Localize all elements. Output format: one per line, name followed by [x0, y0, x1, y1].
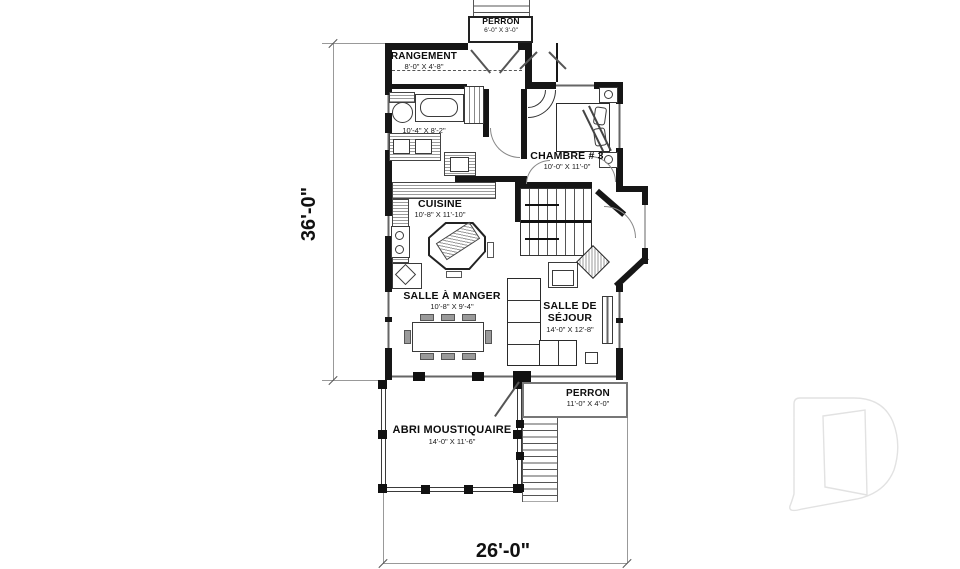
- room-dims-salle-de-sejour: 14'-0" X 12'-8": [535, 325, 605, 334]
- window-dining-mullion: [385, 317, 392, 322]
- laundry-sink: [450, 157, 469, 172]
- porch-door-leaf: [494, 381, 520, 417]
- nightstand-lamp: [604, 90, 613, 99]
- bathroom-door-swing: [490, 128, 520, 158]
- floor-plan: 36'-0" 26'-0" PERRON 6'-0" X 3'-0": [0, 0, 960, 569]
- stove-burner: [395, 245, 404, 254]
- window-bedroom-north: [556, 82, 594, 89]
- stair-arrow: [525, 204, 559, 206]
- stair-post: [516, 484, 524, 492]
- dim-line-vertical-36ft: [333, 43, 334, 380]
- dining-chair: [441, 314, 455, 321]
- porch-screen-south: [381, 487, 522, 492]
- room-dims-perron-bas: 11'-0" X 4'-0": [548, 399, 628, 408]
- dim-extension-left-26: [383, 493, 384, 563]
- window-south-4: [531, 373, 616, 380]
- wall-rangement-bath: [392, 84, 467, 89]
- pillow: [593, 106, 607, 125]
- wall-hall-bedroom: [521, 89, 527, 159]
- porch-post: [378, 484, 387, 493]
- wall-top-left: [385, 43, 468, 50]
- toilet: [392, 102, 413, 123]
- island-stool: [487, 242, 494, 258]
- room-label-perron-bas: PERRON: [548, 388, 628, 400]
- stair-post: [516, 452, 524, 460]
- window-south-1: [392, 373, 413, 380]
- room-label-perron-top: PERRON: [471, 17, 531, 27]
- overall-depth-label: 36'-0": [298, 179, 320, 249]
- room-dims-cuisine: 10'-8" X 11'-10": [405, 210, 475, 219]
- room-label-salle-a-manger: SALLE À MANGER: [392, 290, 512, 302]
- drummond-logo-watermark: [780, 382, 960, 522]
- room-dims-abri-moustiquaire: 14'-0" X 11'-6": [382, 437, 522, 446]
- dining-chair: [441, 353, 455, 360]
- porch-post: [421, 485, 430, 494]
- room-label-rangement: RANGEMENT: [389, 51, 459, 63]
- dim-extension-right-26: [627, 418, 628, 563]
- entry-door-swing: [604, 206, 636, 238]
- porch-post: [378, 380, 387, 389]
- window-living-mullion: [616, 318, 623, 323]
- bathtub-basin: [420, 98, 458, 117]
- wall-post: [472, 372, 484, 381]
- room-dims-rangement: 8'-0" X 4'-8": [389, 62, 459, 71]
- dining-chair: [462, 314, 476, 321]
- vanity-sink-right: [415, 139, 432, 154]
- window-bedroom-east: [616, 104, 623, 148]
- room-label-cuisine: CUISINE: [405, 198, 475, 210]
- dining-chair: [404, 330, 411, 344]
- dining-chair: [462, 353, 476, 360]
- room-label-salle-de-sejour: SALLE DE SÉJOUR: [535, 300, 605, 324]
- stove-burner: [395, 231, 404, 240]
- dim-line-horizontal-26ft: [383, 563, 627, 564]
- vanity-sink-left: [393, 139, 410, 154]
- room-label-chambre-3: CHAMBRE # 3: [522, 150, 612, 162]
- room-dims-salle-de-bain: 10'-4" X 8'-2": [389, 126, 459, 135]
- sofa-sectional-horizontal: [539, 340, 577, 366]
- window-south-3: [484, 373, 513, 380]
- staircase: [520, 188, 592, 256]
- room-label-abri-moustiquaire: ABRI MOUSTIQUAIRE: [382, 424, 522, 437]
- window-south-2: [425, 373, 472, 380]
- overall-width-label: 26'-0": [463, 540, 543, 563]
- dining-chair: [485, 330, 492, 344]
- island-stool: [446, 271, 462, 278]
- exterior-stairs: [522, 418, 558, 502]
- porch-post: [464, 485, 473, 494]
- stair-arrow: [525, 238, 559, 240]
- armchair-seat: [552, 270, 574, 286]
- dining-chair: [420, 314, 434, 321]
- side-table: [585, 352, 598, 364]
- kitchen-counter-north: [392, 182, 496, 199]
- room-dims-chambre-3: 10'-0" X 11'-0": [522, 162, 612, 171]
- dining-table: [412, 322, 484, 352]
- dining-chair: [420, 353, 434, 360]
- room-dims-perron-top: 6'-0" X 3'-0": [471, 27, 531, 34]
- room-dims-salle-a-manger: 10'-8" X 9'-4": [392, 302, 512, 311]
- top-porch-steps: [473, 0, 530, 16]
- window-entry-east: [642, 205, 648, 248]
- linen-closet: [464, 86, 484, 124]
- wall-post: [413, 372, 425, 381]
